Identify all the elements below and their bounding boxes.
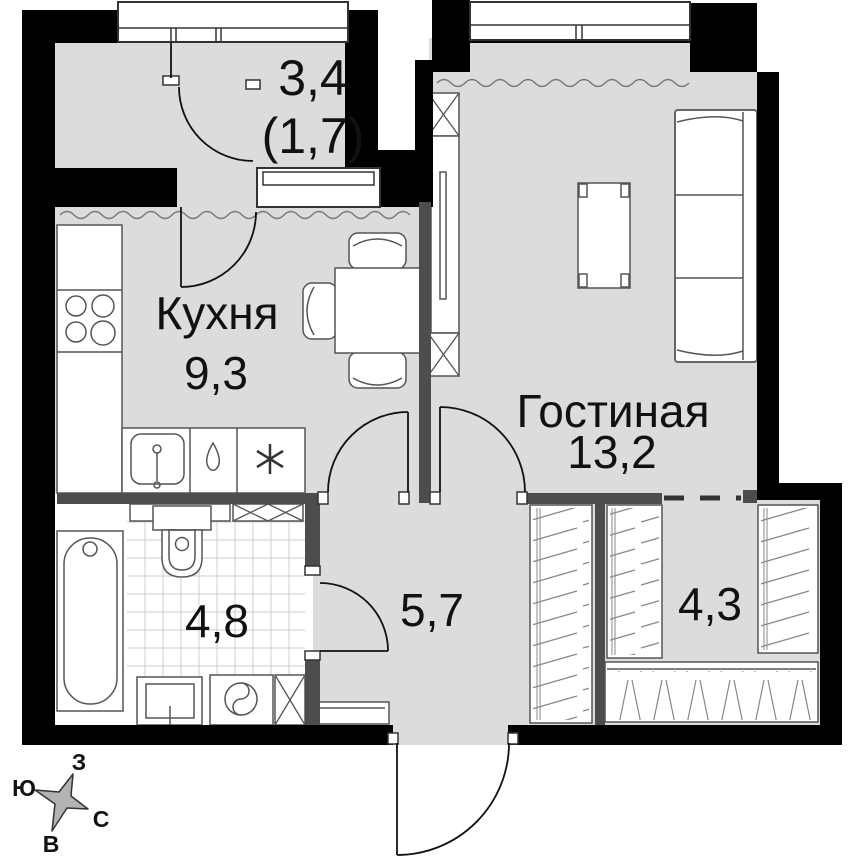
compass-west-label: З	[72, 749, 86, 775]
compass-star-icon	[35, 774, 88, 831]
kitchen-counter	[57, 225, 122, 493]
vent-shaft-x-icon	[233, 504, 303, 521]
wardrobe-area-label: 4,3	[678, 578, 742, 630]
bathroom-area-label: 4,8	[185, 595, 249, 647]
compass-rose: З Ю С В	[12, 749, 109, 857]
vent-shaft-x-icon	[428, 333, 459, 376]
bathtub	[57, 531, 123, 711]
living-area-label: 13,2	[567, 426, 657, 478]
washing-machine-icon	[210, 675, 273, 725]
floor-plan: 3,4 (1,7) Кухня 9,3 Гостиная 13,2 4,8 5,…	[0, 0, 864, 864]
kitchen-area-label: 9,3	[184, 347, 248, 399]
entry-threshold	[393, 725, 508, 745]
living-window	[470, 2, 690, 40]
coffee-table	[578, 183, 630, 288]
balcony-area-label: 3,4	[278, 50, 348, 106]
wardrobe-unit	[605, 662, 818, 722]
hallway-area-label: 5,7	[400, 584, 464, 636]
balcony-window	[118, 2, 348, 42]
balcony-reduced-area-label: (1,7)	[262, 108, 365, 164]
kitchen-name-label: Кухня	[155, 287, 278, 339]
bathroom-sink	[137, 677, 202, 725]
wardrobe-unit	[607, 505, 662, 658]
vent-shaft-x-icon	[275, 675, 305, 725]
compass-east-label: В	[43, 831, 60, 857]
hallway-cabinet	[313, 702, 389, 724]
chair	[349, 233, 406, 269]
chair	[303, 283, 337, 339]
wardrobe-unit	[758, 505, 818, 653]
floor-plan-page: 3,4 (1,7) Кухня 9,3 Гостиная 13,2 4,8 5,…	[0, 0, 864, 864]
wall-cabinet	[431, 136, 459, 333]
wardrobe-unit	[530, 505, 592, 723]
dining-table	[335, 268, 420, 353]
entrance-door	[397, 743, 509, 855]
bathroom	[57, 504, 305, 725]
compass-south-label: Ю	[12, 775, 36, 801]
kitchen-balcony-window-sill	[257, 168, 380, 207]
sofa	[675, 110, 757, 362]
chair	[349, 352, 406, 388]
compass-north-label: С	[93, 806, 110, 832]
